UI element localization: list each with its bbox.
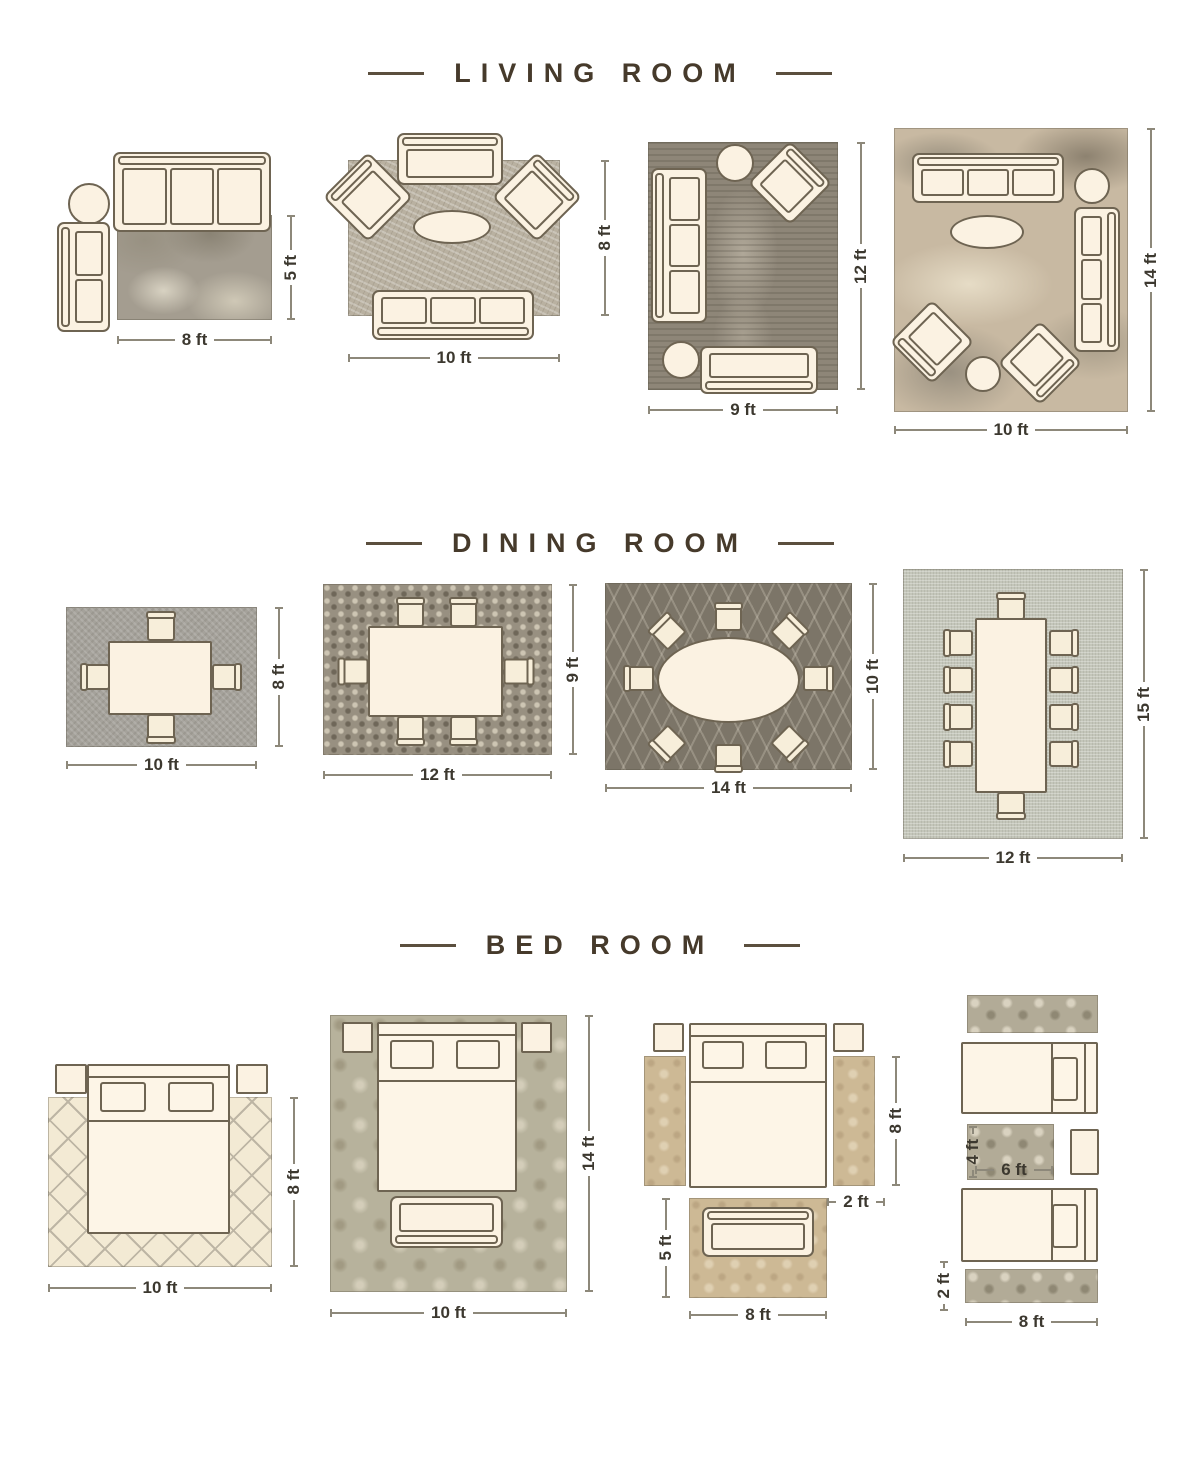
- dining-chair-icon: [997, 596, 1025, 620]
- queen-bed-icon: [689, 1023, 827, 1188]
- dim-height: 15 ft: [1133, 569, 1155, 839]
- dim-runner-width: 2 ft: [933, 1261, 955, 1311]
- chaise-sofa-icon: [57, 222, 110, 332]
- twin-bed-icon: [961, 1188, 1098, 1262]
- dining-chair-icon: [947, 741, 973, 767]
- dining-chair-icon: [342, 659, 369, 685]
- runner-rug: [965, 1269, 1098, 1303]
- dining-chair-icon: [947, 667, 973, 693]
- loveseat-icon: [700, 346, 818, 394]
- dim-height: 8 ft: [594, 160, 616, 316]
- section-header-living-room: LIVING ROOM: [0, 58, 1200, 89]
- dim-width: 12 ft: [903, 848, 1123, 868]
- dimension-label: 8 ft: [182, 330, 208, 350]
- dimension-label: 8 ft: [745, 1305, 771, 1325]
- bedside-runner-rug: [644, 1056, 686, 1186]
- header-dash: [368, 72, 424, 75]
- nightstand-icon: [55, 1064, 87, 1094]
- section-title: DINING ROOM: [452, 528, 748, 559]
- header-dash: [400, 944, 456, 947]
- round-side-table-icon: [1074, 168, 1110, 204]
- nightstand-icon: [236, 1064, 268, 1094]
- dim-width: 10 ft: [48, 1278, 272, 1298]
- loveseat-icon: [702, 1207, 814, 1257]
- dim-foot-rug-width: 8 ft: [689, 1305, 827, 1325]
- dining-chair-icon: [450, 716, 477, 742]
- dimension-label: 14 ft: [711, 778, 746, 798]
- round-side-table-icon: [68, 183, 110, 225]
- dim-height: 9 ft: [562, 584, 584, 755]
- twin-bed-icon: [961, 1042, 1098, 1114]
- oval-dining-table-icon: [657, 637, 800, 723]
- dim-width: 10 ft: [348, 348, 560, 368]
- dining-chair-icon: [947, 704, 973, 730]
- dimension-label: 10 ft: [863, 659, 883, 694]
- section-header-dining-room: DINING ROOM: [0, 528, 1200, 559]
- dim-accent-rug-width: 6 ft: [975, 1160, 1053, 1180]
- dining-chair-icon: [397, 716, 424, 742]
- three-seat-sofa-icon: [113, 152, 271, 232]
- dimension-label: 2 ft: [934, 1273, 954, 1299]
- dim-width: 10 ft: [330, 1303, 567, 1323]
- loveseat-icon: [397, 133, 503, 185]
- dimension-label: 12 ft: [996, 848, 1031, 868]
- dining-chair-icon: [1049, 741, 1075, 767]
- nightstand-icon: [521, 1022, 552, 1053]
- nightstand-icon: [342, 1022, 373, 1053]
- dimension-label: 14 ft: [1141, 253, 1161, 288]
- dimension-label: 8 ft: [269, 664, 289, 690]
- dimension-label: 14 ft: [579, 1136, 599, 1171]
- dimension-label: 5 ft: [281, 255, 301, 281]
- dimension-label: 8 ft: [595, 225, 615, 251]
- dimension-label: 8 ft: [284, 1169, 304, 1195]
- round-side-table-icon: [662, 341, 700, 379]
- dim-width: 10 ft: [66, 755, 257, 775]
- section-title: LIVING ROOM: [454, 58, 746, 89]
- dim-width: 14 ft: [605, 778, 852, 798]
- dim-width: 12 ft: [323, 765, 552, 785]
- header-dash: [744, 944, 800, 947]
- nightstand-icon: [1070, 1129, 1099, 1175]
- dimension-label: 10 ft: [437, 348, 472, 368]
- bedside-runner-rug: [833, 1056, 875, 1186]
- dining-chair-icon: [715, 606, 742, 631]
- round-side-table-icon: [965, 356, 1001, 392]
- dim-height: 14 ft: [1140, 128, 1162, 412]
- dimension-label: 12 ft: [851, 249, 871, 284]
- dining-chair-icon: [997, 792, 1025, 816]
- dining-chair-icon: [803, 666, 830, 691]
- three-seat-sofa-icon: [1074, 207, 1120, 352]
- three-seat-sofa-icon: [651, 168, 707, 323]
- dimension-label: 5 ft: [656, 1235, 676, 1261]
- dining-chair-icon: [947, 630, 973, 656]
- dining-chair-icon: [450, 601, 477, 627]
- rug-size-guide: LIVING ROOM 8 ft 5 ft 10 ft 8 ft 9 ft 12…: [0, 0, 1200, 1467]
- dim-runner-length: 8 ft: [965, 1312, 1098, 1332]
- dimension-label: 2 ft: [843, 1192, 869, 1212]
- three-seat-sofa-icon: [372, 290, 534, 340]
- dimension-label: 12 ft: [420, 765, 455, 785]
- dining-chair-icon: [1049, 630, 1075, 656]
- runner-rug: [967, 995, 1098, 1033]
- dining-table-icon: [368, 626, 503, 717]
- dim-width: 9 ft: [648, 400, 838, 420]
- dimension-label: 8 ft: [1019, 1312, 1045, 1332]
- dimension-label: 10 ft: [144, 755, 179, 775]
- dim-runner-width: 2 ft: [827, 1192, 885, 1212]
- dim-height: 8 ft: [283, 1097, 305, 1267]
- section-title: BED ROOM: [486, 930, 715, 961]
- dining-chair-icon: [84, 664, 110, 690]
- queen-bed-icon: [87, 1064, 230, 1234]
- dimension-label: 8 ft: [886, 1108, 906, 1134]
- dining-chair-icon: [504, 659, 531, 685]
- dimension-label: 15 ft: [1134, 687, 1154, 722]
- dining-chair-icon: [397, 601, 424, 627]
- dining-chair-icon: [147, 615, 175, 641]
- nightstand-icon: [653, 1023, 684, 1052]
- header-dash: [778, 542, 834, 545]
- dim-height: 8 ft: [268, 607, 290, 747]
- dim-runner-length: 8 ft: [885, 1056, 907, 1186]
- dining-chair-icon: [212, 664, 238, 690]
- dim-height: 14 ft: [578, 1015, 600, 1292]
- dining-chair-icon: [627, 666, 654, 691]
- long-dining-table-icon: [975, 618, 1047, 793]
- dim-height: 12 ft: [850, 142, 872, 390]
- dimension-label: 10 ft: [143, 1278, 178, 1298]
- bench-icon: [390, 1196, 503, 1248]
- dimension-label: 10 ft: [431, 1303, 466, 1323]
- oval-coffee-table-icon: [950, 215, 1024, 249]
- dining-chair-icon: [147, 714, 175, 740]
- dining-chair-icon: [715, 744, 742, 769]
- queen-bed-icon: [377, 1022, 517, 1192]
- section-header-bed-room: BED ROOM: [0, 930, 1200, 961]
- dimension-label: 9 ft: [563, 657, 583, 683]
- header-dash: [366, 542, 422, 545]
- dimension-label: 6 ft: [1001, 1160, 1027, 1180]
- dim-height: 5 ft: [280, 215, 302, 320]
- dining-chair-icon: [1049, 667, 1075, 693]
- dining-chair-icon: [1049, 704, 1075, 730]
- dim-width: 8 ft: [117, 330, 272, 350]
- round-side-table-icon: [716, 144, 754, 182]
- dimension-label: 9 ft: [730, 400, 756, 420]
- three-seat-sofa-icon: [912, 153, 1064, 203]
- header-dash: [776, 72, 832, 75]
- oval-coffee-table-icon: [413, 210, 491, 244]
- dining-table-icon: [108, 641, 212, 715]
- dim-width: 10 ft: [894, 420, 1128, 440]
- dim-foot-rug-height: 5 ft: [655, 1198, 677, 1298]
- nightstand-icon: [833, 1023, 864, 1052]
- dimension-label: 10 ft: [994, 420, 1029, 440]
- dim-height: 10 ft: [862, 583, 884, 770]
